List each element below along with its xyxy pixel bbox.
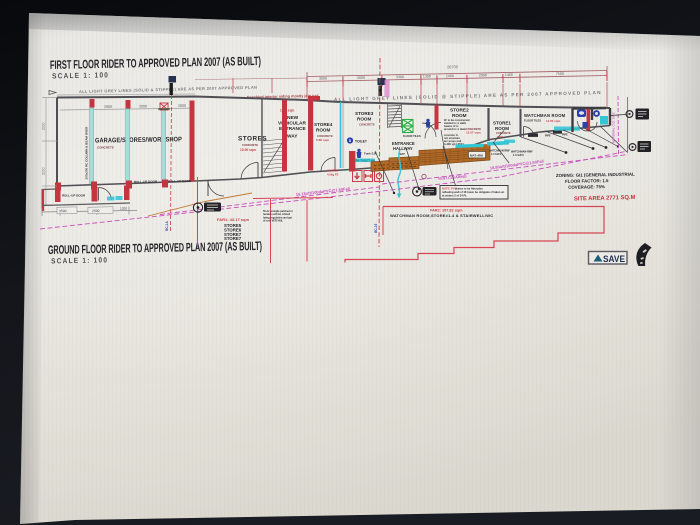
svg-text:STORES: STORES — [238, 136, 267, 143]
svg-text:12.07 sqm: 12.07 sqm — [466, 130, 481, 134]
svg-text:Funk SJK: Funk SJK — [364, 152, 377, 156]
svg-text:1300: 1300 — [423, 75, 431, 79]
svg-text:200x300 RC COLUMN & BEAM OVER: 200x300 RC COLUMN & BEAM OVER — [85, 126, 89, 180]
svg-text:SCALE 1: 100: SCALE 1: 100 — [52, 70, 109, 80]
svg-text:PIPE: PIPE — [545, 135, 551, 138]
svg-text:ROOM: ROOM — [316, 128, 330, 133]
svg-text:FLOOR FACTOR: 1.5: FLOOR FACTOR: 1.5 — [565, 178, 609, 184]
svg-text:at widest 2 of 34 PL: at widest 2 of 34 PL — [442, 194, 467, 198]
svg-text:7500: 7500 — [556, 72, 564, 76]
svg-text:WATCHMAN-RMF: WATCHMAN-RMF — [511, 150, 533, 154]
svg-text:refkudng wall of 18 lower be o: refkudng wall of 18 lower be obligates 2… — [442, 190, 505, 194]
svg-text:2900: 2900 — [479, 73, 487, 77]
svg-text:GARAGE/STORES/WORKSHOP: GARAGE/STORES/WORKSHOP — [95, 136, 183, 144]
svg-text:28700: 28700 — [447, 64, 459, 69]
svg-text:FAR1: 43.17 sqm: FAR1: 43.17 sqm — [217, 217, 249, 222]
svg-text:3300: 3300 — [396, 75, 404, 79]
svg-text:2500: 2500 — [92, 209, 100, 213]
svg-text:WAY: WAY — [287, 134, 298, 140]
svg-text:1.0 SJFC: 1.0 SJFC — [491, 153, 502, 156]
svg-text:COVERAGE: 75%: COVERAGE: 75% — [568, 184, 605, 190]
svg-text:NEW: NEW — [287, 115, 299, 121]
svg-text:FLOOR TILES: FLOOR TILES — [524, 119, 541, 123]
svg-text:WATCHMAN ROOM,STORE#1-4 & STAI: WATCHMAN ROOM,STORE#1-4 & STAIRWELL/WC — [390, 213, 493, 218]
svg-text:around to rc dado: around to rc dado — [444, 127, 466, 131]
svg-text:STORE1: STORE1 — [493, 121, 511, 126]
svg-text:5.88 sqm: 5.88 sqm — [316, 138, 329, 142]
svg-text:2800: 2800 — [104, 105, 112, 109]
svg-text:SAVE: SAVE — [603, 254, 625, 264]
svg-text:2800: 2800 — [139, 104, 147, 108]
svg-text:drains to be fittorplan: drains to be fittorplan — [455, 187, 483, 191]
svg-text:ROLL-UP DOOR: ROLL-UP DOOR — [134, 180, 158, 184]
svg-text:3000: 3000 — [319, 77, 327, 81]
svg-text:TOILET: TOILET — [355, 140, 368, 144]
svg-text:1.0 SJFC: 1.0 SJFC — [513, 153, 524, 157]
svg-text:FLOOR TILES: FLOOR TILES — [403, 134, 421, 138]
svg-text:ROLL-UP DOOR: ROLL-UP DOOR — [62, 194, 86, 198]
svg-text:PIPE: PIPE — [562, 134, 568, 137]
svg-text:ROLL-UP DOOR: ROLL-UP DOOR — [168, 179, 192, 183]
svg-text:HALLWAY: HALLWAY — [393, 146, 413, 151]
svg-text:STORE4: STORE4 — [314, 122, 333, 127]
svg-text:of sels VER VAIL: of sels VER VAIL — [263, 220, 283, 223]
svg-text:CONCRETE: CONCRETE — [359, 122, 375, 126]
svg-text:1200: 1200 — [120, 207, 127, 211]
svg-text:BC-19: BC-19 — [374, 224, 378, 233]
svg-text:2000: 2000 — [42, 122, 46, 130]
svg-text:CONCRETE: CONCRETE — [97, 146, 114, 150]
svg-text:3500: 3500 — [59, 209, 67, 213]
svg-text:10.00 sqm: 10.00 sqm — [240, 148, 256, 152]
svg-text:MAT: MAT — [399, 152, 405, 156]
svg-text:3000: 3000 — [357, 76, 365, 80]
svg-text:2000: 2000 — [42, 167, 46, 175]
svg-text:4.5kg FE: 4.5kg FE — [327, 173, 339, 177]
svg-text:ROOM: ROOM — [495, 126, 509, 131]
svg-text:ROOM: ROOM — [452, 113, 467, 118]
svg-text:STORE7: STORE7 — [224, 236, 242, 241]
svg-text:CONCRETE: CONCRETE — [317, 134, 333, 138]
svg-text:MATERIAL C.O. SITE: MATERIAL C.O. SITE — [612, 112, 616, 143]
svg-text:BC-1A: BC-1A — [165, 221, 169, 231]
svg-text:ROOM: ROOM — [357, 117, 371, 122]
svg-text:11.50 sqm: 11.50 sqm — [546, 119, 561, 123]
svg-text:1400: 1400 — [505, 73, 513, 77]
svg-text:2800: 2800 — [178, 104, 186, 108]
svg-text:MAT+RM: MAT+RM — [470, 153, 483, 157]
svg-text:STORE2: STORE2 — [450, 108, 469, 113]
svg-text:WATCHMAN ROOM: WATCHMAN ROOM — [524, 113, 566, 118]
svg-text:2400: 2400 — [446, 74, 454, 78]
svg-text:CONCRETE: CONCRETE — [242, 143, 258, 147]
svg-text:FAR2: 157.82 sqm: FAR2: 157.82 sqm — [430, 209, 463, 213]
svg-text:STORE3: STORE3 — [355, 111, 374, 116]
svg-text:SCALE 1: 100: SCALE 1: 100 — [51, 255, 108, 265]
